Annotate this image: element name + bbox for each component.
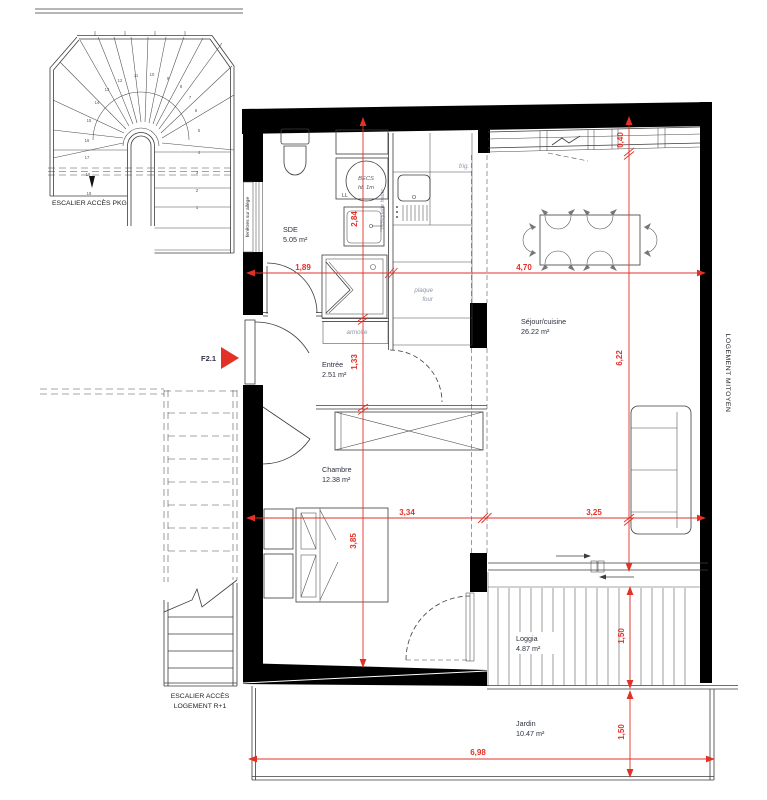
step-number: 2 [196,188,199,193]
floor-plan-page: 1 2 3 4 5 6 7 8 9 10 11 12 13 14 15 16 1… [0,0,767,800]
dim-sde-depth: 2,84 [350,211,359,227]
room-area-sde: 5.05 m² [283,235,308,244]
step-number: 10 [150,72,155,77]
sejour-window-band [488,127,700,161]
room-name-sde: SDE [283,225,298,234]
chambre-door [263,407,310,464]
room-name-entree: Entrée [322,360,343,369]
entrance-marker: F2.1 [201,347,239,369]
dim-chambre-width: 3,34 [399,508,415,517]
stairs-pkg-label: ESCALIER ACCÈS PKG [52,198,127,207]
step-number: 6 [195,108,198,113]
dim-sejour-width: 4,70 [516,263,532,272]
entry-wardrobe: armoire [323,322,388,344]
doors: F2.1 [201,263,708,580]
left-wall-seg3 [243,385,263,665]
water-heater-label-line2: ht. 1m [358,185,374,191]
step-number: 7 [189,95,192,100]
left-wall-seg1 [243,130,263,182]
dim-sejour-width-lower: 3,25 [586,508,602,517]
water-heater-label-line1: BECS [358,176,374,182]
floor-plan-drawing: 1 2 3 4 5 6 7 8 9 10 11 12 13 14 15 16 1… [0,0,767,800]
stairs-r1-label-line1: ESCALIER ACCÈS [171,691,230,700]
step-number: 13 [105,87,110,92]
dim-chambre-depth: 3,85 [349,533,358,549]
step-number: 11 [134,73,139,78]
sejour-door-swing [390,350,442,402]
toilet [281,129,309,175]
step-number: 5 [198,128,201,133]
step-number: 19 [87,191,92,196]
washing-machine-label: LL [342,193,348,199]
room-area-entree: 2.51 m² [322,370,347,379]
step-number: 1 [196,205,199,210]
entrance-arrow-icon [221,347,239,369]
dim-loggia-depth: 1,50 [617,628,626,644]
winder-steps [53,37,234,158]
step-number: 17 [85,155,90,160]
wardrobe-chambre [335,412,483,450]
room-name-jardin: Jardin [516,719,536,728]
exterior-staircase-r1: ESCALIER ACCÈS LOGEMENT R+1 [40,389,237,710]
entrance-door [245,320,309,384]
unit-entrance-label: F2.1 [201,354,216,363]
room-area-chambre: 12.38 m² [322,475,351,484]
dim-window-offset: 0,40 [616,132,625,148]
room-area-jardin: 10.47 m² [516,729,545,738]
jardin-fence [252,686,714,780]
room-area-loggia: 4.87 m² [516,644,541,653]
right-party-wall [700,102,712,683]
dim-jardin-depth: 1,50 [617,724,626,740]
step-number: 8 [180,84,183,89]
bed [296,508,388,602]
top-wall [242,102,712,134]
party-wall-label: LOGEMENT MITOYEN [724,334,731,413]
chambre-loggia-window [406,593,474,661]
room-area-sejour: 26.22 m² [521,327,550,336]
hob-label-line1: plaque [413,287,433,294]
stair-step-numbers: 1 2 3 4 5 6 7 8 9 10 11 12 13 14 15 16 1… [85,72,201,210]
room-name-loggia: Loggia [516,634,538,643]
dim-sde-width: 1,89 [295,263,311,272]
step-number: 16 [85,138,90,143]
dim-sejour-depth: 6,22 [615,350,624,366]
sill-window: fenêtres sur allège [244,182,263,252]
dim-entree-depth: 1,33 [350,354,359,370]
bottom-wall [243,663,487,686]
step-number: 14 [95,100,100,105]
wardrobe-label: armoire [347,329,369,336]
spiral-staircase-pkg: 1 2 3 4 5 6 7 8 9 10 11 12 13 14 15 16 1… [48,31,234,253]
stair-direction-arrow [89,176,95,188]
sill-window-label: fenêtres sur allège [245,197,251,238]
dining-table [523,209,657,271]
step-number: 15 [87,118,92,123]
room-name-sejour: Séjour/cuisine [521,317,566,326]
kitchen-counter: frig. plaque four mosquette haute [380,133,472,345]
step-number: 18 [86,172,91,177]
column-kitchen [470,303,487,348]
stairs-r1-label-line2: LOGEMENT R+1 [174,703,227,710]
window-pier [478,106,490,153]
step-number: 4 [198,150,201,155]
shower [322,255,387,318]
walls: LOGEMENT MITOYEN [242,102,731,686]
hob-label-line2: four [422,296,434,303]
partitions [263,133,487,553]
fridge-label: frig. [459,163,469,170]
sofa [631,406,691,534]
step-number: 12 [118,78,123,83]
step-number: 3 [196,170,199,175]
column-sejour [470,553,487,592]
site-boundary-lines [35,9,243,13]
left-wall-seg2 [243,252,263,315]
kitchen-sink [396,175,430,221]
stair-break-line [164,580,237,612]
dim-total-width: 6,98 [470,748,486,757]
sliding-bay-door [488,554,708,580]
nightstand [264,509,293,598]
room-name-chambre: Chambre [322,465,352,474]
